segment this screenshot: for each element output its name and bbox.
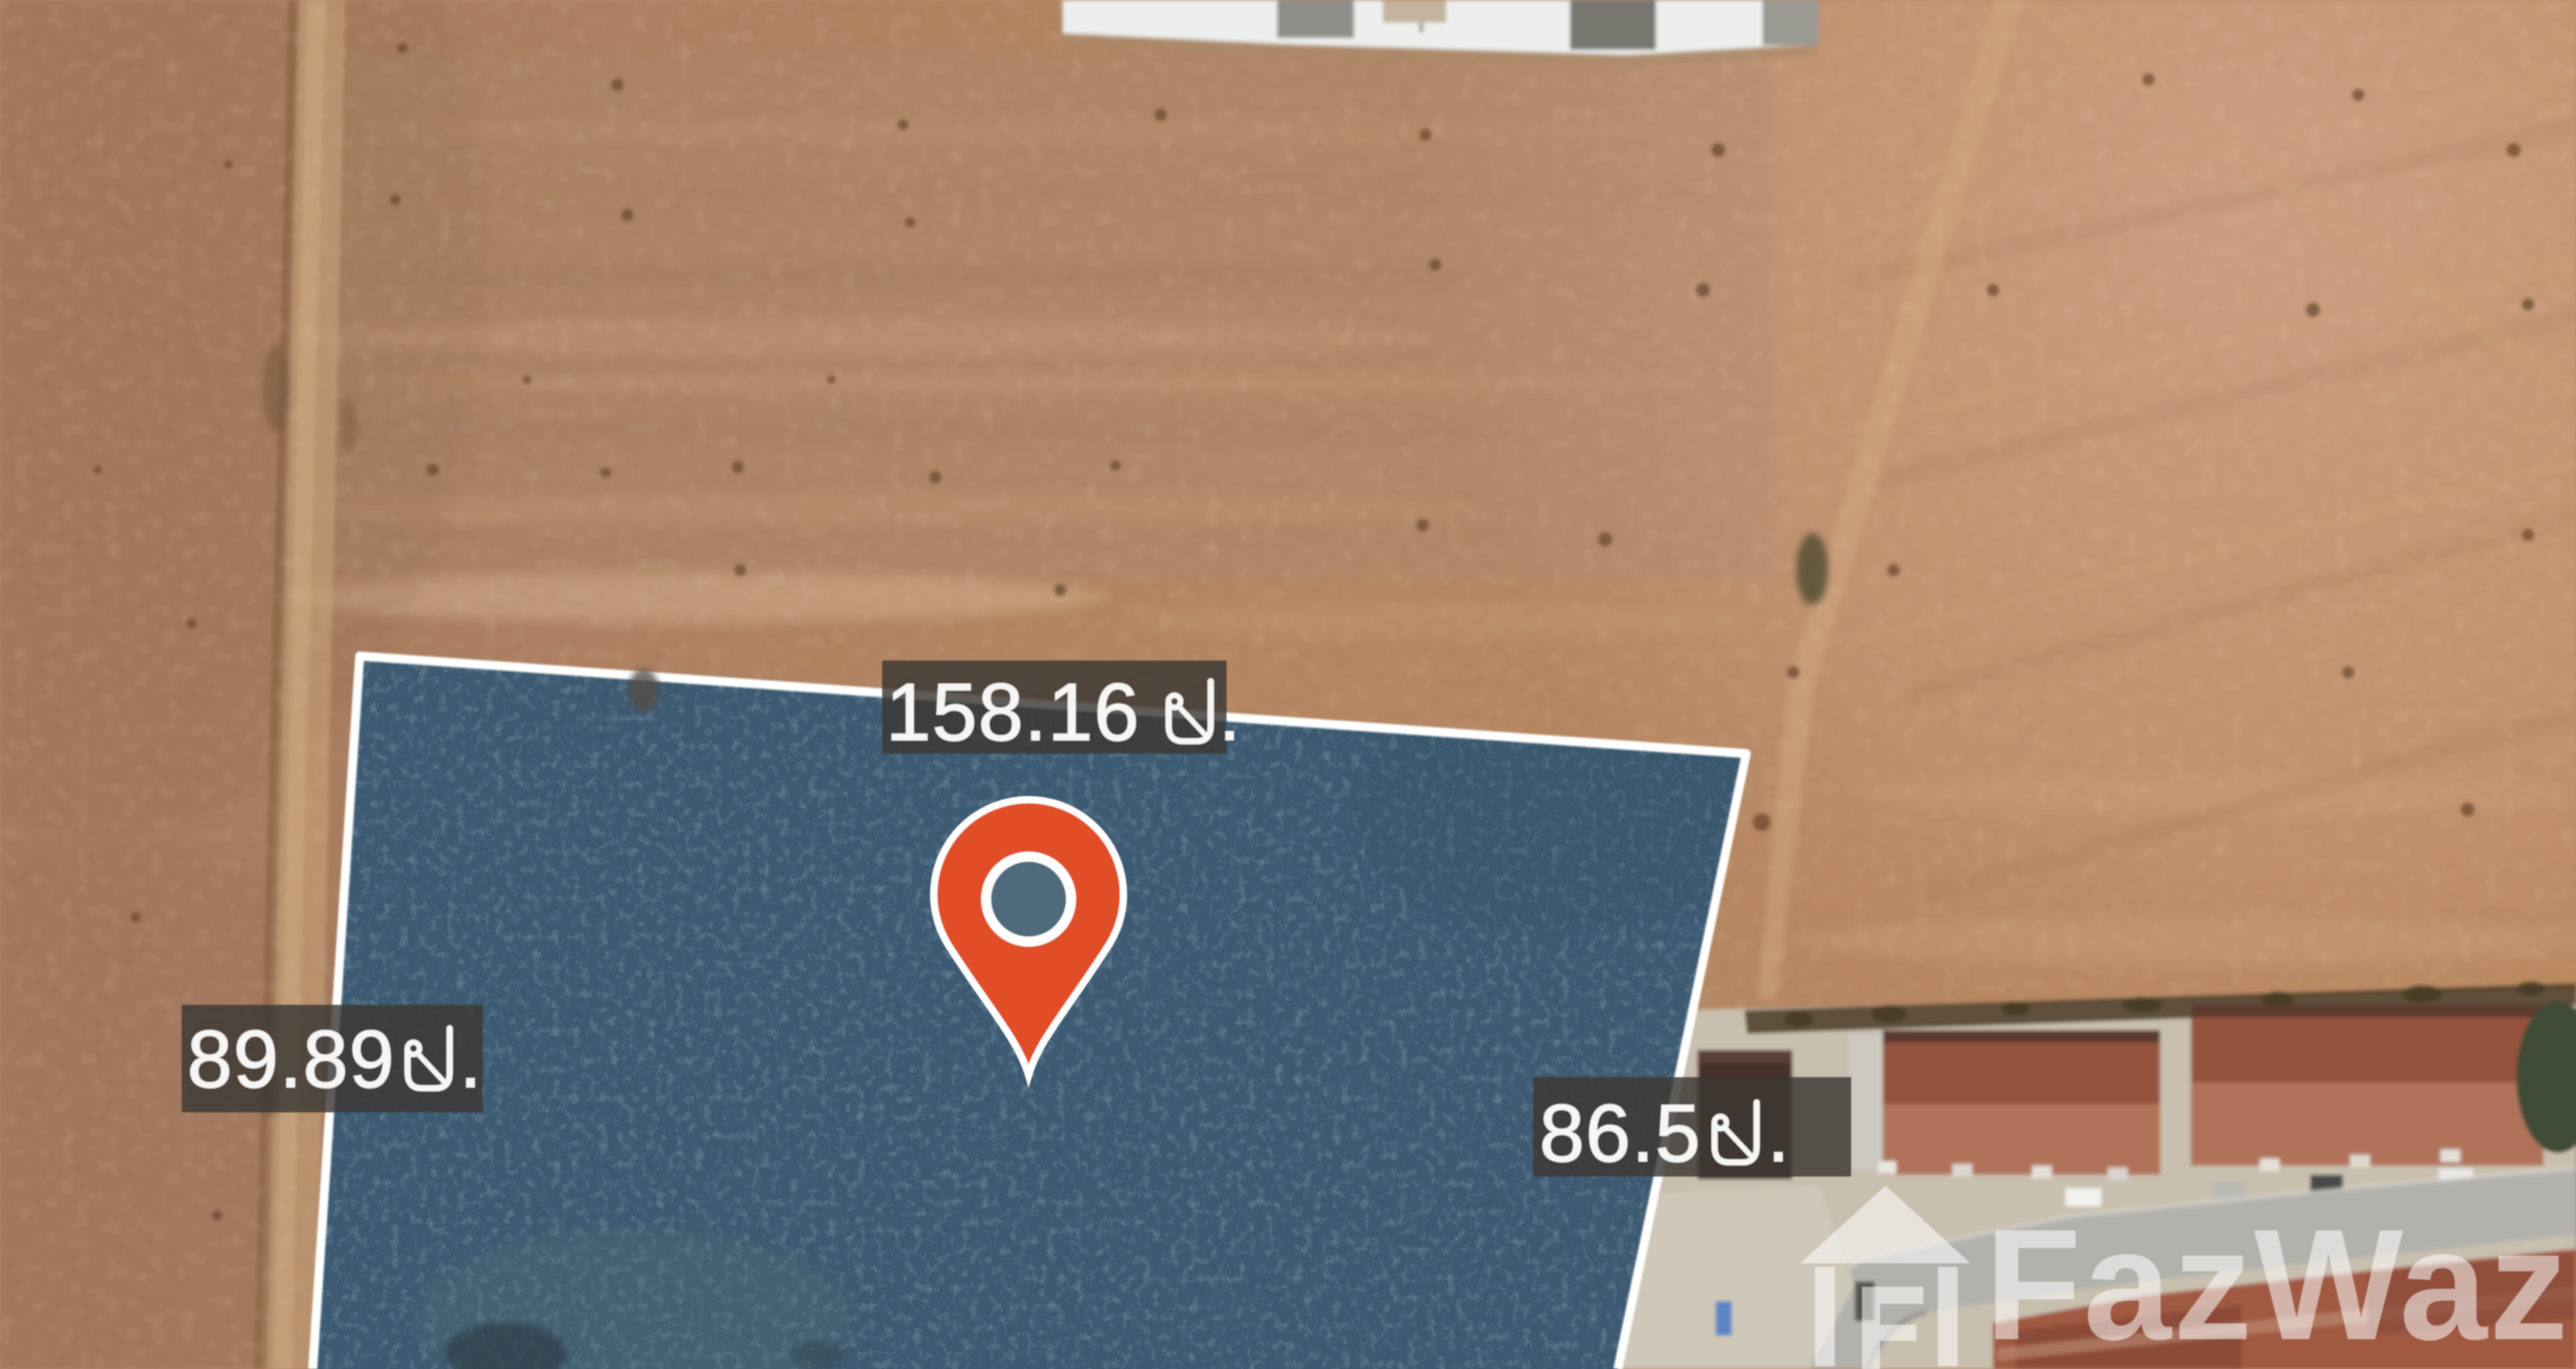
svg-text:158.16: 158.16 (886, 668, 1140, 758)
svg-text:86.5: 86.5 (1539, 1089, 1701, 1179)
svg-text:89.89: 89.89 (187, 1015, 395, 1105)
svg-text:.: . (459, 1015, 482, 1105)
svg-text:.: . (1218, 668, 1241, 758)
svg-text:FazWaz: FazWaz (1985, 1197, 2570, 1369)
svg-text:.: . (1767, 1089, 1790, 1179)
